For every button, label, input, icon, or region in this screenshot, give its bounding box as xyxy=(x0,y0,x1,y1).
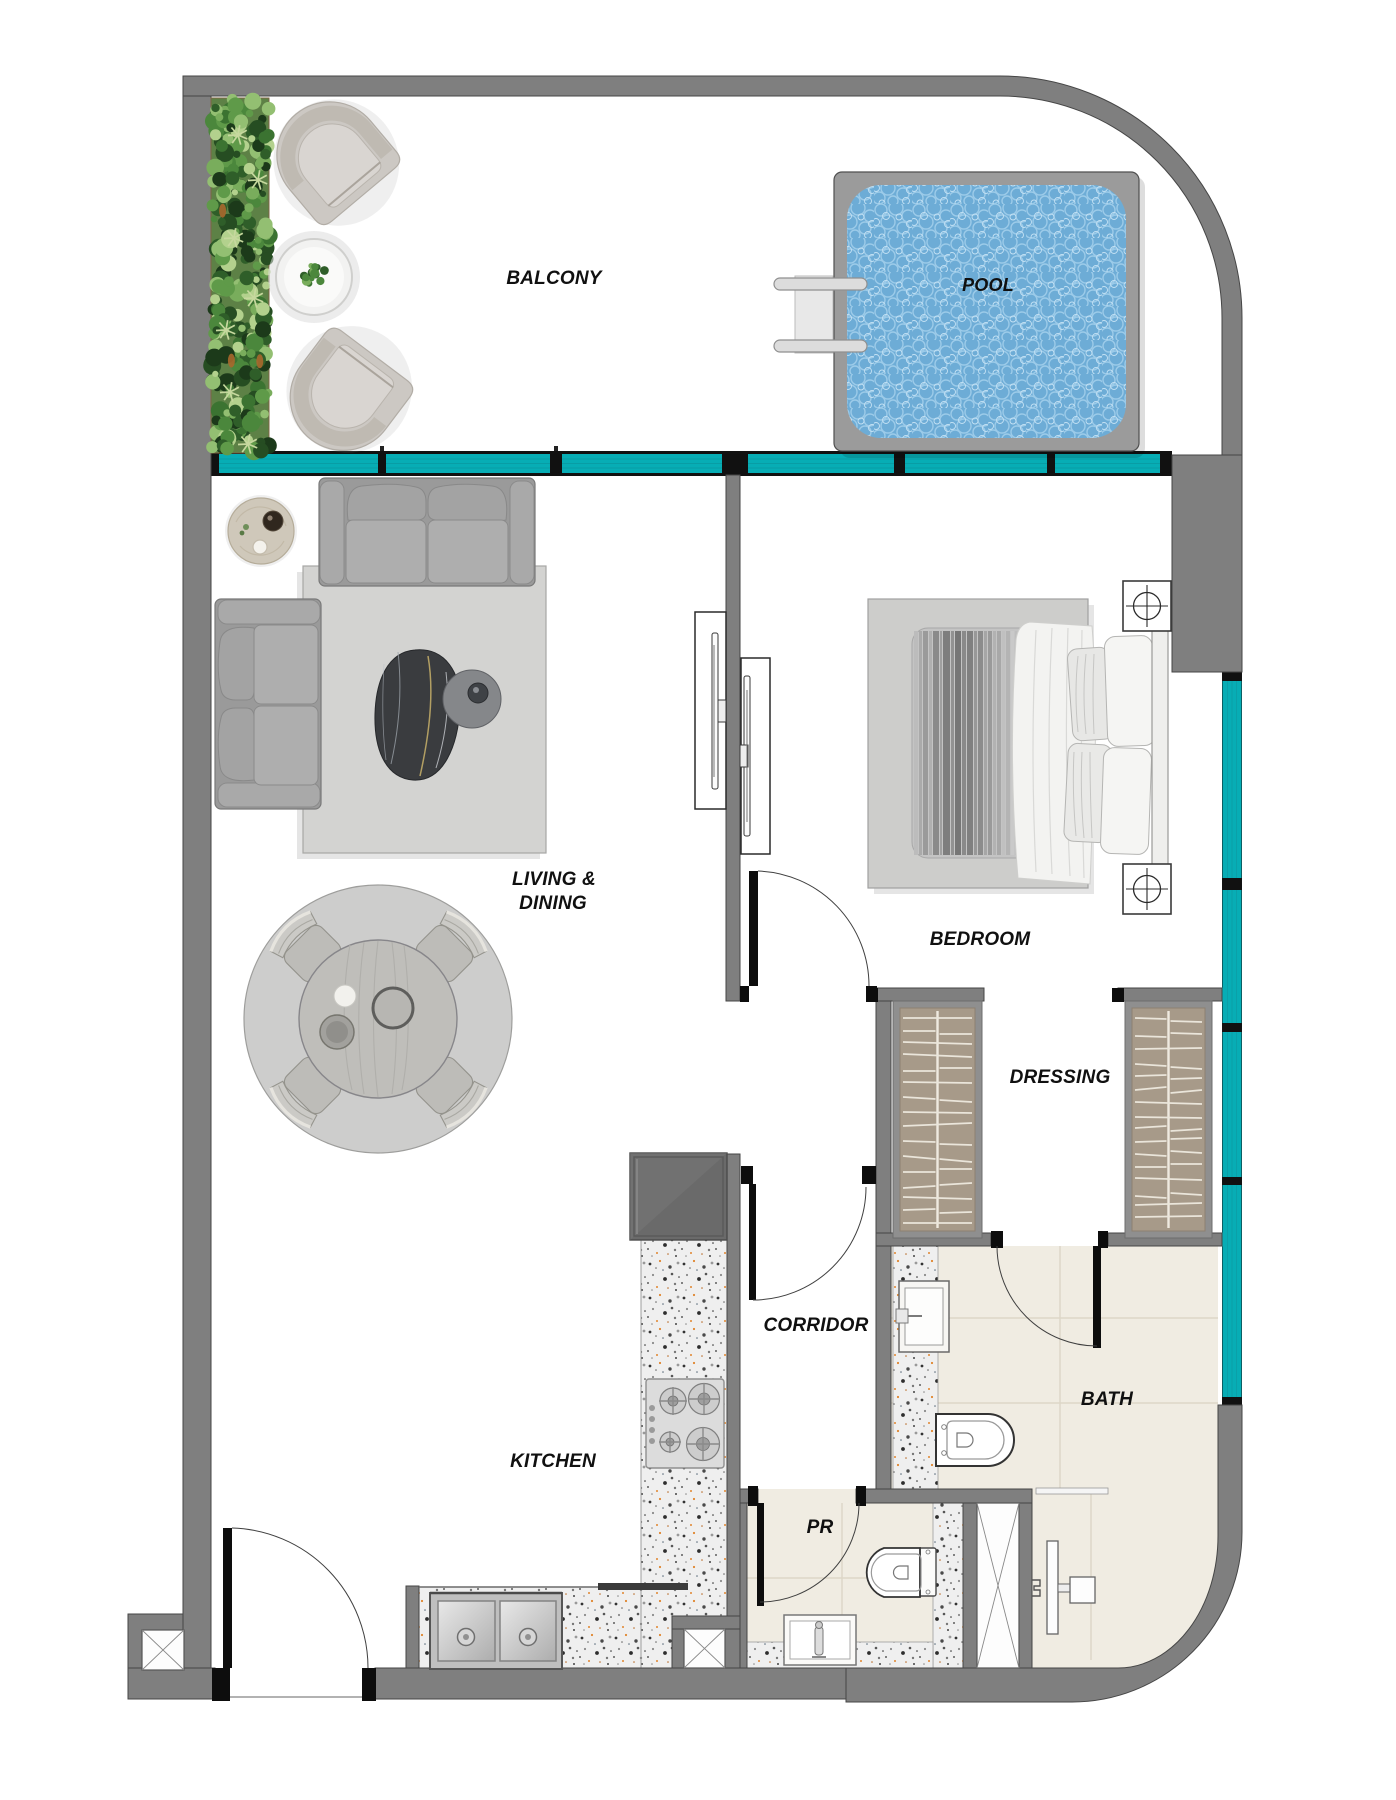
svg-text:PR: PR xyxy=(807,1517,834,1538)
svg-text:DRESSING: DRESSING xyxy=(1010,1067,1111,1088)
svg-text:CORRIDOR: CORRIDOR xyxy=(763,1315,868,1336)
svg-text:BALCONY: BALCONY xyxy=(506,268,603,289)
svg-text:KITCHEN: KITCHEN xyxy=(510,1451,597,1472)
svg-text:DINING: DINING xyxy=(519,893,587,914)
svg-text:BEDROOM: BEDROOM xyxy=(930,929,1032,950)
svg-text:LIVING &: LIVING & xyxy=(512,869,596,890)
svg-text:BATH: BATH xyxy=(1081,1389,1134,1410)
svg-text:POOL: POOL xyxy=(962,275,1014,295)
